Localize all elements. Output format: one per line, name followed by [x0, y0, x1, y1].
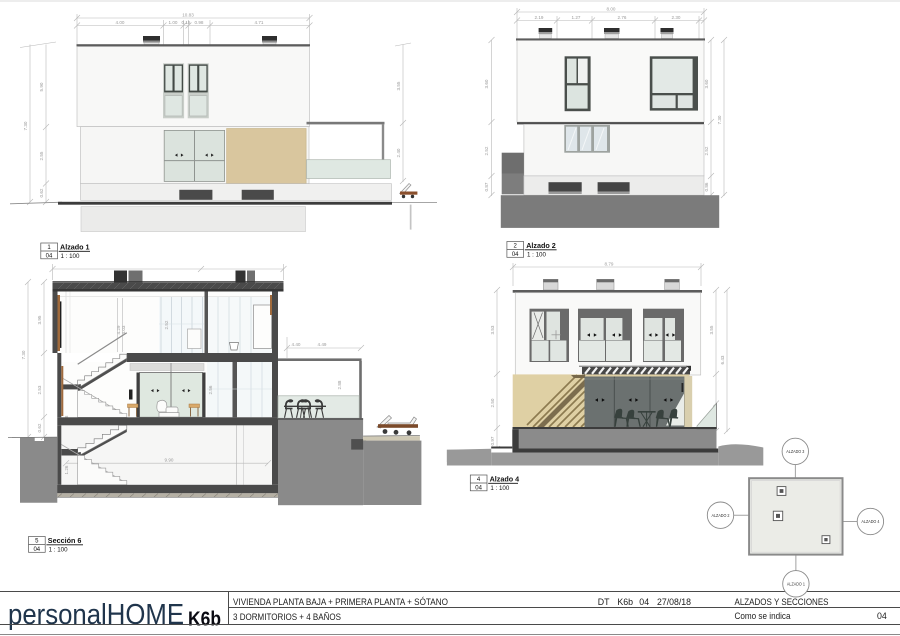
svg-text:3.55: 3.55 [396, 81, 401, 90]
svg-text:04: 04 [639, 597, 649, 607]
svg-text:1 : 100: 1 : 100 [490, 485, 509, 492]
svg-text:ALZADO 2: ALZADO 2 [712, 513, 730, 518]
svg-text:1.27: 1.27 [572, 15, 581, 20]
svg-text:4.49: 4.49 [318, 342, 327, 347]
svg-text:0.87: 0.87 [484, 182, 489, 191]
svg-text:8.00: 8.00 [607, 7, 616, 12]
svg-text:2.19: 2.19 [535, 15, 544, 20]
svg-text:6.43: 6.43 [720, 355, 725, 364]
svg-text:2.52: 2.52 [484, 146, 489, 155]
svg-text:10.83: 10.83 [182, 13, 194, 18]
svg-text:7.30: 7.30 [21, 350, 26, 359]
svg-text:4.71: 4.71 [255, 20, 264, 25]
svg-text:04: 04 [33, 547, 40, 553]
svg-text:2.50: 2.50 [490, 398, 495, 407]
svg-text:0.97: 0.97 [490, 436, 495, 445]
svg-text:ALZADO 4: ALZADO 4 [861, 519, 879, 524]
svg-text:3.95: 3.95 [37, 315, 42, 324]
svg-text:2.52: 2.52 [164, 320, 169, 329]
svg-text:7.30: 7.30 [717, 115, 722, 124]
svg-text:2.52: 2.52 [704, 146, 709, 155]
svg-text:Como se indica: Como se indica [735, 611, 791, 621]
svg-text:2.88: 2.88 [337, 380, 342, 389]
svg-text:1 : 100: 1 : 100 [49, 547, 68, 554]
svg-text:5.90: 5.90 [39, 82, 44, 91]
svg-text:K6b: K6b [617, 597, 633, 607]
svg-text:0.62: 0.62 [39, 188, 44, 197]
svg-text:1 : 100: 1 : 100 [527, 252, 546, 259]
svg-text:ALZADO 3: ALZADO 3 [786, 449, 804, 454]
svg-text:ALZADOS Y SECCIONES: ALZADOS Y SECCIONES [735, 597, 829, 607]
svg-text:7.30: 7.30 [23, 121, 28, 130]
svg-text:3.55: 3.55 [709, 325, 714, 334]
svg-text:3 DORMITORIOS + 4 BAÑOS: 3 DORMITORIOS + 4 BAÑOS [233, 612, 341, 622]
svg-text:27/08/18: 27/08/18 [657, 597, 691, 607]
svg-text:0.15: 0.15 [182, 20, 191, 25]
svg-text:Alzado 4: Alzado 4 [490, 475, 520, 484]
svg-text:04: 04 [512, 252, 519, 258]
svg-text:04: 04 [475, 485, 482, 491]
svg-text:DT: DT [598, 597, 610, 607]
svg-text:0.86: 0.86 [704, 182, 709, 191]
svg-text:3.60: 3.60 [704, 79, 709, 88]
svg-text:04: 04 [877, 611, 887, 621]
svg-text:0.98: 0.98 [195, 20, 204, 25]
svg-text:ALZADO 1: ALZADO 1 [787, 581, 805, 586]
svg-text:4.00: 4.00 [116, 20, 125, 25]
svg-text:3.60: 3.60 [484, 79, 489, 88]
svg-text:2.40: 2.40 [396, 148, 401, 157]
svg-text:1.26: 1.26 [64, 465, 69, 474]
svg-text:Alzado 2: Alzado 2 [526, 241, 556, 250]
svg-text:2.30: 2.30 [672, 15, 681, 20]
svg-text:1.00: 1.00 [169, 20, 178, 25]
svg-text:04: 04 [46, 253, 53, 259]
svg-text:0.62: 0.62 [37, 423, 42, 432]
svg-text:Alzado 1: Alzado 1 [60, 243, 90, 252]
svg-text:K6b: K6b [188, 608, 221, 631]
svg-text:2.56: 2.56 [208, 385, 213, 394]
svg-text:4.03: 4.03 [121, 325, 126, 334]
svg-text:2.76: 2.76 [618, 15, 627, 20]
svg-text:Sección 6: Sección 6 [48, 536, 82, 545]
svg-text:3.53: 3.53 [490, 325, 495, 334]
svg-text:4.40: 4.40 [292, 342, 301, 347]
svg-text:9.90: 9.90 [165, 458, 174, 463]
svg-text:personalHOME: personalHOME [8, 599, 184, 631]
svg-text:1 : 100: 1 : 100 [61, 253, 80, 260]
svg-text:2.55: 2.55 [39, 151, 44, 160]
svg-text:2.53: 2.53 [37, 385, 42, 394]
svg-text:8.79: 8.79 [605, 262, 614, 267]
svg-text:VIVIENDA PLANTA BAJA + PRIMER: VIVIENDA PLANTA BAJA + PRIMERA PLANTA + … [233, 597, 448, 607]
